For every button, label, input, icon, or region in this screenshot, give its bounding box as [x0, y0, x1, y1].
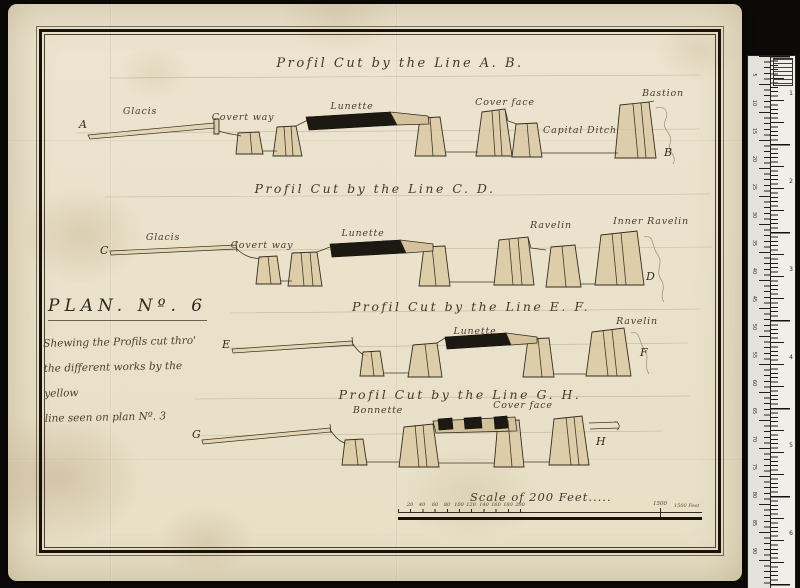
lunette-parapet-cd	[330, 240, 406, 257]
scale-end-note: 1500 Feet	[674, 503, 699, 509]
ruler-column-left: 5 10 15 20 25 30 35 40 45 50 55 60 65 70…	[747, 55, 771, 588]
label-ravelin-ef: Ravelin	[615, 316, 658, 327]
profile-gh: Bonnette Cover face G H	[192, 400, 662, 467]
bonnette-blocks-gh	[438, 416, 508, 430]
ruler-number: 2	[789, 178, 793, 185]
ruler-number: 70	[751, 434, 757, 444]
scale-bar: 20 40 60 80 100 120 140 160 180 200 1500…	[398, 512, 702, 520]
scanned-plan-photograph: Profil Cut by the Line A. B. Profil Cut …	[0, 0, 800, 588]
letter-a: A	[78, 118, 87, 131]
ruler-number: 5	[789, 442, 793, 449]
label-inner-ravelin-cd: Inner Ravelin	[612, 216, 689, 227]
ruler-number: 6	[789, 530, 793, 537]
scale-far-tick	[660, 508, 661, 517]
scale-tick-label: 40	[415, 502, 429, 508]
scale-bar-ticks	[398, 509, 521, 513]
glacis-cd	[110, 245, 237, 255]
letter-b: B	[663, 146, 672, 159]
ruler-number: 45	[751, 294, 757, 304]
ruler-header-patch	[773, 58, 793, 86]
ruler-number: 90	[751, 546, 757, 556]
label-lunette-cd: Lunette	[340, 228, 384, 239]
ruler-number: 65	[751, 406, 757, 416]
ruler-number: 15	[751, 126, 757, 136]
ruler-number: 55	[751, 350, 757, 360]
label-lunette-ab: Lunette	[329, 101, 373, 112]
label-lunette-ef: Lunette	[452, 326, 496, 337]
label-cover-face-gh: Cover face	[493, 400, 553, 411]
label-capital-ditch-ab: Capital Ditch	[543, 125, 617, 136]
lunette-terreplein-cd	[400, 240, 433, 253]
ruler-number: 75	[751, 462, 757, 472]
label-bastion-ab: Bastion	[641, 88, 684, 99]
label-cover-face-ab: Cover face	[475, 97, 535, 108]
label-glacis-ab: Glacis	[123, 106, 157, 117]
ruler-number: 50	[751, 322, 757, 332]
scale-far-tick-label: 1500	[653, 501, 667, 507]
archival-ruler: 5 10 15 20 25 30 35 40 45 50 55 60 65 70…	[747, 55, 796, 588]
ruler-number: 60	[751, 378, 757, 388]
profile-ef: Lunette Ravelin E F	[221, 316, 688, 377]
ruler-number: 20	[751, 154, 757, 164]
rampart-walls-cd	[256, 231, 644, 287]
label-ravelin-cd: Ravelin	[529, 220, 572, 231]
letter-h: H	[595, 435, 606, 448]
ruler-number: 5	[751, 70, 757, 80]
ruler-number: 30	[751, 210, 757, 220]
letter-c: C	[100, 244, 109, 257]
label-glacis-cd: Glacis	[146, 232, 180, 243]
ruler-number: 25	[751, 182, 757, 192]
profile-ab: Glacis Covert way Lunette Cover face Cap…	[76, 88, 700, 164]
lunette-terreplein-ab	[390, 112, 429, 125]
ruler-number: 4	[789, 354, 793, 361]
scale-tick-label: 120	[464, 502, 478, 508]
scale-tick-label: 200	[513, 502, 527, 508]
ruler-number: 1	[789, 90, 793, 97]
ruler-number: 40	[751, 266, 757, 276]
lunette-parapet-ab	[306, 112, 397, 130]
ruler-long-ticks	[759, 56, 770, 588]
lunette-terreplein-ef	[506, 333, 537, 345]
letter-f: F	[639, 346, 648, 359]
glacis-ab	[88, 123, 216, 139]
label-covert-way-ab: Covert way	[212, 112, 275, 123]
ruler-column-right: 1 2 3 4 5 6	[771, 55, 796, 588]
label-covert-way-cd: Covert way	[231, 240, 294, 251]
ruler-number: 3	[789, 266, 793, 273]
profile-cd: Glacis Covert way Lunette Ravelin Inner …	[100, 216, 712, 302]
ruler-number: 85	[751, 518, 757, 528]
letter-e: E	[221, 338, 230, 351]
profiles-drawing: Glacis Covert way Lunette Cover face Cap…	[0, 0, 800, 588]
letter-d: D	[645, 270, 655, 283]
ruler-number: 35	[751, 238, 757, 248]
ruler-major-ticks	[771, 56, 790, 588]
letter-g: G	[192, 428, 201, 441]
label-bonnette-gh: Bonnette	[352, 405, 403, 416]
ruler-number: 10	[751, 98, 757, 108]
ruler-number: 80	[751, 490, 757, 500]
